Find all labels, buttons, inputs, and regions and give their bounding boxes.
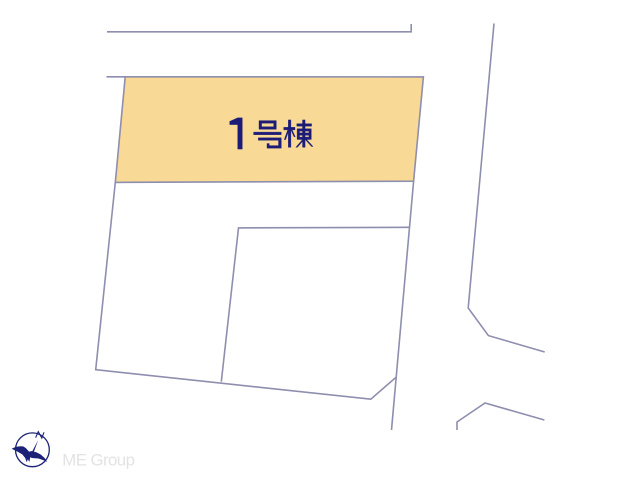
svg-text:ME Group: ME Group — [62, 451, 134, 470]
